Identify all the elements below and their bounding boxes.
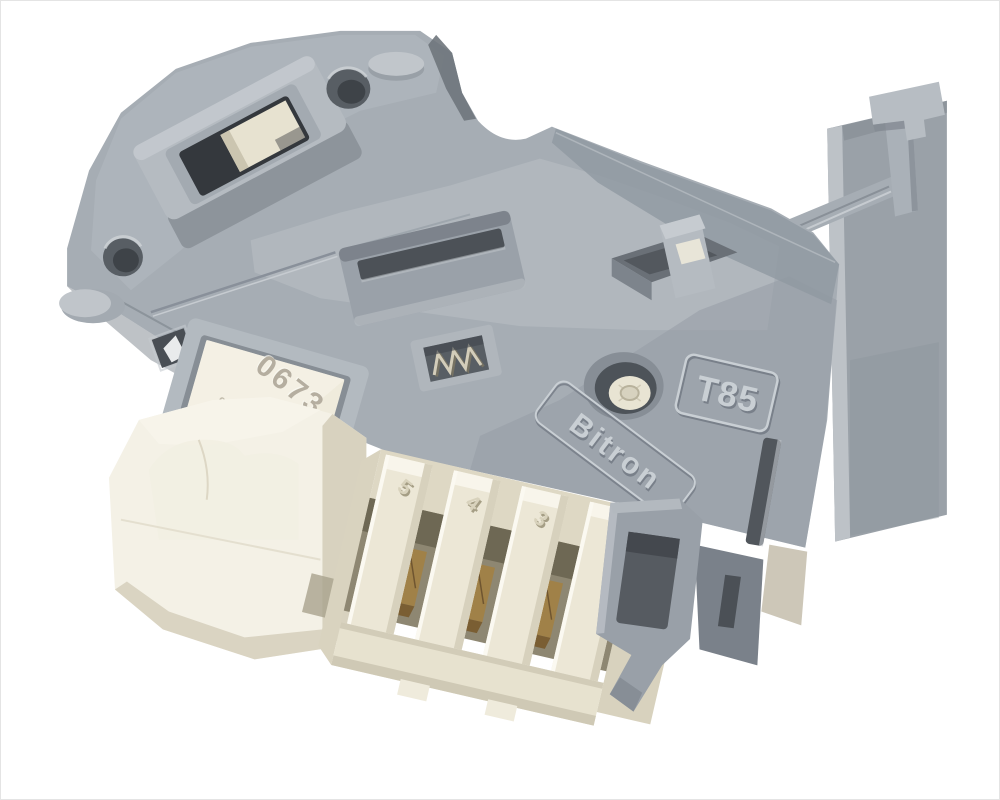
round-port (584, 352, 664, 420)
boss-pad (368, 52, 424, 76)
clip-backplate (695, 545, 764, 666)
product-photo: T85 T85 Bitron Bitron 0673 0673 9.01.5 (0, 0, 1000, 800)
mounting-plate (827, 101, 947, 542)
body-underside (761, 545, 807, 626)
screw-hole-left (103, 237, 143, 277)
